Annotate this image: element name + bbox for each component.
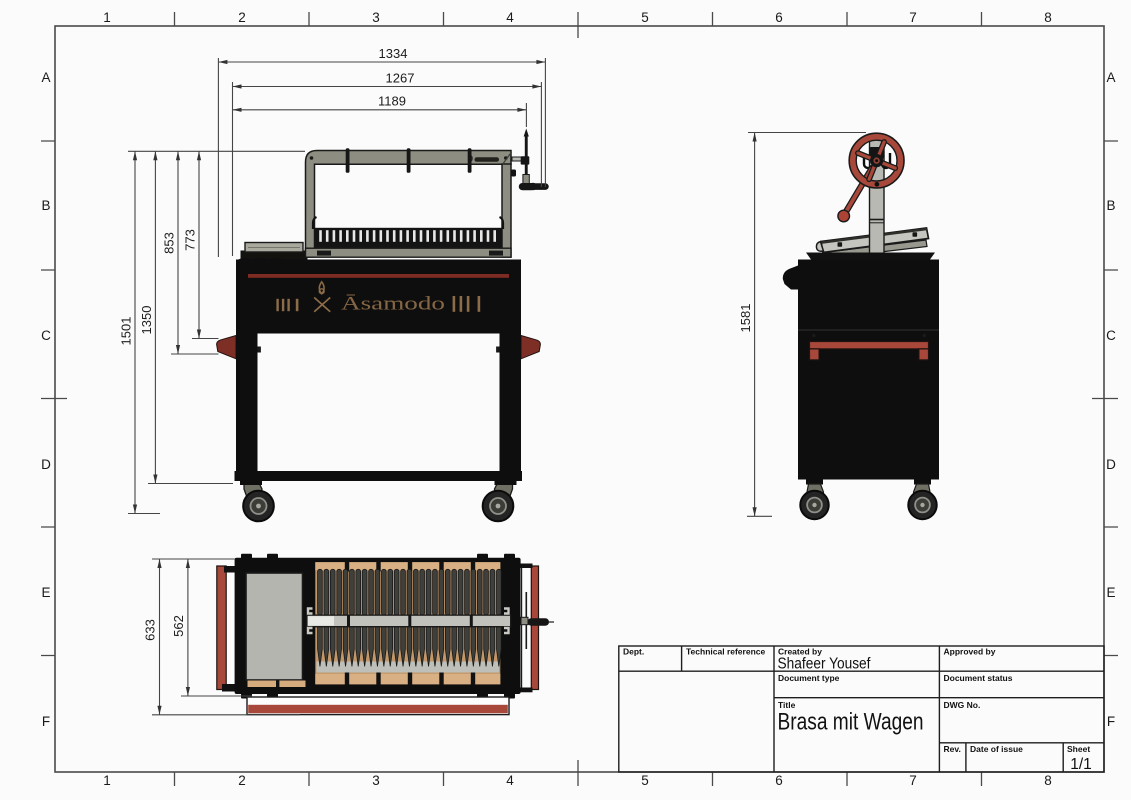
svg-text:Sheet: Sheet	[1067, 744, 1090, 754]
svg-text:7: 7	[909, 10, 917, 25]
svg-text:7: 7	[909, 773, 917, 788]
svg-text:E: E	[1106, 585, 1115, 600]
svg-text:Dept.: Dept.	[623, 647, 644, 657]
svg-text:F: F	[42, 714, 50, 729]
svg-text:3: 3	[372, 773, 380, 788]
svg-text:4: 4	[506, 10, 514, 25]
svg-text:A: A	[1106, 70, 1115, 85]
svg-text:4: 4	[506, 773, 514, 788]
svg-text:8: 8	[1044, 773, 1052, 788]
svg-text:1334: 1334	[379, 46, 408, 61]
svg-text:5: 5	[641, 773, 649, 788]
svg-text:1581: 1581	[738, 304, 753, 333]
svg-text:2: 2	[238, 773, 246, 788]
svg-text:Rev.: Rev.	[944, 744, 961, 754]
svg-text:1189: 1189	[378, 94, 406, 109]
svg-text:F: F	[1107, 714, 1115, 729]
svg-text:2: 2	[238, 10, 246, 25]
svg-text:773: 773	[183, 229, 198, 251]
svg-text:Approved by: Approved by	[944, 647, 996, 657]
svg-text:6: 6	[775, 773, 783, 788]
svg-text:Brasa mit Wagen: Brasa mit Wagen	[778, 709, 924, 736]
svg-text:1267: 1267	[386, 71, 415, 86]
svg-text:C: C	[41, 328, 51, 343]
svg-text:Document type: Document type	[778, 673, 840, 683]
svg-text:A: A	[41, 70, 50, 85]
svg-text:DWG No.: DWG No.	[944, 700, 981, 710]
svg-text:B: B	[1106, 198, 1115, 213]
svg-text:Document status: Document status	[944, 673, 1013, 683]
svg-text:1350: 1350	[139, 306, 154, 335]
svg-text:1: 1	[103, 773, 111, 788]
svg-text:C: C	[1106, 328, 1116, 343]
svg-text:8: 8	[1044, 10, 1052, 25]
svg-text:1501: 1501	[119, 317, 134, 346]
svg-text:6: 6	[775, 10, 783, 25]
svg-text:3: 3	[372, 10, 380, 25]
svg-text:B: B	[41, 198, 50, 213]
svg-text:562: 562	[171, 615, 186, 637]
svg-text:1/1: 1/1	[1070, 756, 1092, 773]
svg-text:D: D	[41, 457, 51, 472]
svg-text:853: 853	[162, 232, 177, 254]
svg-text:E: E	[41, 585, 50, 600]
svg-text:5: 5	[641, 10, 649, 25]
svg-text:Shafeer Yousef: Shafeer Yousef	[778, 656, 872, 673]
svg-text:Technical reference: Technical reference	[686, 647, 765, 657]
svg-text:633: 633	[143, 619, 158, 641]
svg-text:1: 1	[103, 10, 111, 25]
svg-text:D: D	[1106, 457, 1116, 472]
svg-text:Date of issue: Date of issue	[970, 744, 1023, 754]
svg-text:Āsamodo: Āsamodo	[341, 294, 445, 315]
